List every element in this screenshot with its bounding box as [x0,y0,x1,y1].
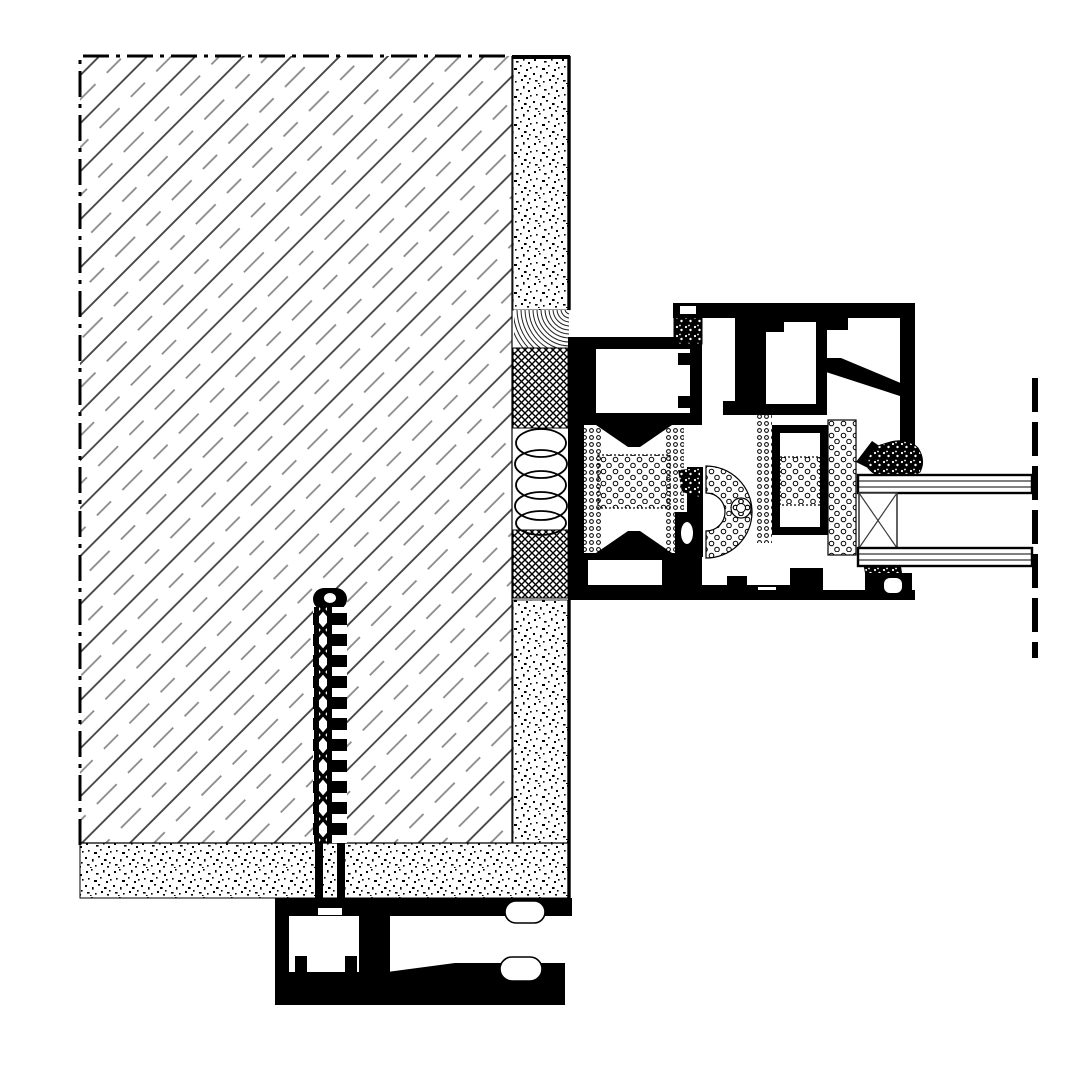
sash-glazing-leg [900,303,915,445]
sill-clip-top [505,901,545,923]
chamber-a-port-bottom [678,396,690,408]
compriband-seal-upper [513,348,568,428]
sill-screw-notch [318,908,342,915]
technical-drawing-page [0,0,1080,1080]
glass-pane-bottom [858,548,1032,566]
glass-pane-top [858,475,1032,493]
sash-outer-gasket [674,318,702,344]
sill-chamber-hook-left [295,956,307,972]
insulation-loop-fill [515,429,567,535]
chamber-a-port-top [678,353,690,365]
glazing-spacer [859,493,897,548]
sill-base-profile [275,898,572,1005]
sash-chamber-b-inner [766,322,816,404]
sash-foam-block [780,457,820,505]
sash-diagonal-strut [826,358,903,397]
center-gasket [675,466,752,558]
sash-right-stub [825,315,848,330]
glazing-foam-block [828,420,856,555]
wall-hatch-fill [80,56,512,843]
thermal-wedge-bottom [596,531,672,553]
thermal-wedge-top [596,425,672,447]
frame-chamber-bottom-inner [588,560,662,586]
section-drawing [0,0,1080,1080]
gasket-lug-hole [737,504,746,513]
anchor-thread-shaft [313,607,347,843]
sill-clip-bottom [500,957,542,981]
glazing-unit [858,378,1035,658]
screed-bed-band [80,843,570,898]
anchor-cap-hole [324,593,336,603]
sash-bottom-step [790,568,823,598]
compriband-seal-lower [513,530,568,598]
gasket-holder-slot [681,522,693,544]
plaster-band-bottom [513,600,569,843]
frame-bottom-foot [727,576,747,585]
thermal-break-foam [598,455,670,508]
sash-gasket-column [755,415,772,543]
sash-mid-web [735,303,755,415]
sash-bottom-clip-hole [884,578,902,593]
frame-chamber-a-inner [596,349,690,413]
sash-bottom-base [568,590,915,600]
sill-chamber-hook-right [345,956,357,972]
sash-top-bar-slot [680,306,696,314]
plaster-band-top [513,56,569,310]
chamber-b-port [766,322,784,332]
